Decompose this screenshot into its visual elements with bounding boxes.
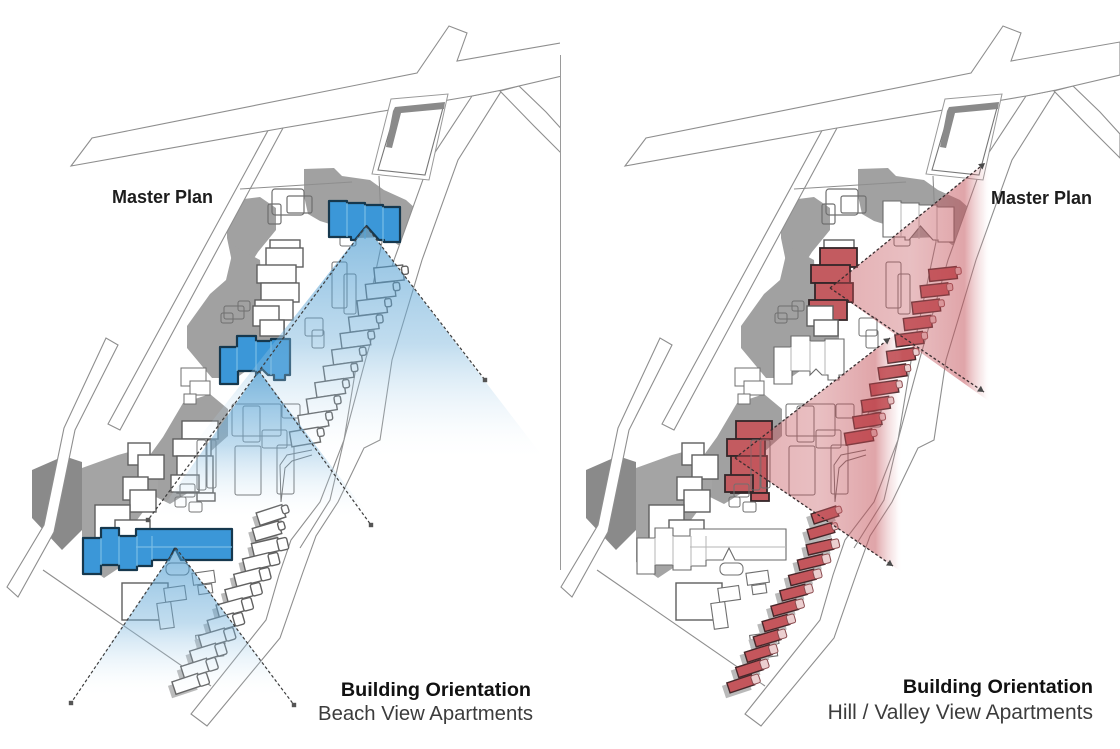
svg-text:Building Orientation: Building Orientation [341,679,531,701]
svg-text:Hill / Valley View Apartments: Hill / Valley View Apartments [828,701,1093,724]
svg-text:Building Orientation: Building Orientation [903,676,1093,698]
svg-text:Beach View Apartments: Beach View Apartments [318,703,533,725]
svg-text:Master Plan: Master Plan [112,187,213,207]
svg-text:Master Plan: Master Plan [991,188,1092,208]
